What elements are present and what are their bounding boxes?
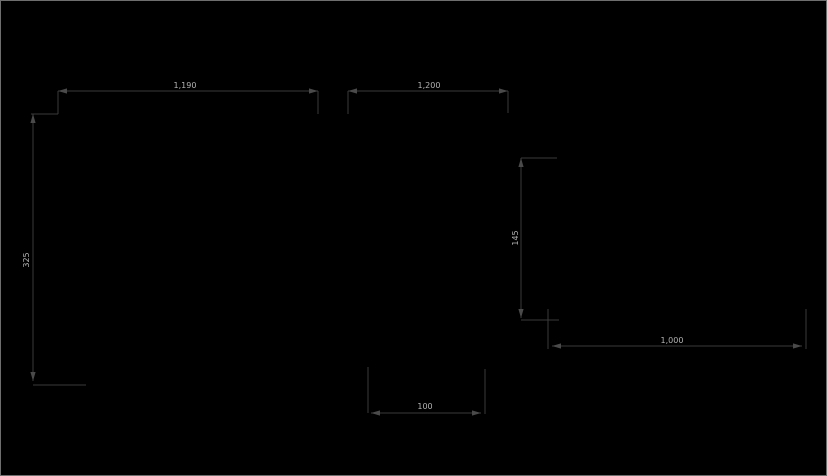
dim-left-height-label: 325 bbox=[22, 252, 31, 267]
dim-bottom-width-label: 100 bbox=[417, 402, 432, 411]
dimension-arrowhead-icon bbox=[499, 88, 508, 93]
dim-mid-right-height-label: 145 bbox=[511, 230, 520, 245]
cad-drawing-canvas[interactable]: 1,1901,2003251451,000100 bbox=[0, 0, 827, 476]
dim-bottom-right-width-label: 1,000 bbox=[661, 336, 684, 345]
dim-top-left-width-label: 1,190 bbox=[174, 81, 197, 90]
dimension-arrowhead-icon bbox=[30, 114, 35, 123]
dimension-arrowhead-icon bbox=[371, 410, 380, 415]
dimension-arrowhead-icon bbox=[552, 343, 561, 348]
dim-top-right-width-label: 1,200 bbox=[418, 81, 441, 90]
dimension-arrowhead-icon bbox=[518, 158, 523, 167]
dimension-arrowhead-icon bbox=[793, 343, 802, 348]
dimension-arrowhead-icon bbox=[58, 88, 67, 93]
technical-drawing: 1,1901,2003251451,000100 bbox=[1, 1, 826, 475]
dimension-arrowhead-icon bbox=[518, 309, 523, 318]
dimension-arrowhead-icon bbox=[348, 88, 357, 93]
dimension-arrowhead-icon bbox=[309, 88, 318, 93]
dimension-arrowhead-icon bbox=[472, 410, 481, 415]
dimension-arrowhead-icon bbox=[30, 372, 35, 381]
